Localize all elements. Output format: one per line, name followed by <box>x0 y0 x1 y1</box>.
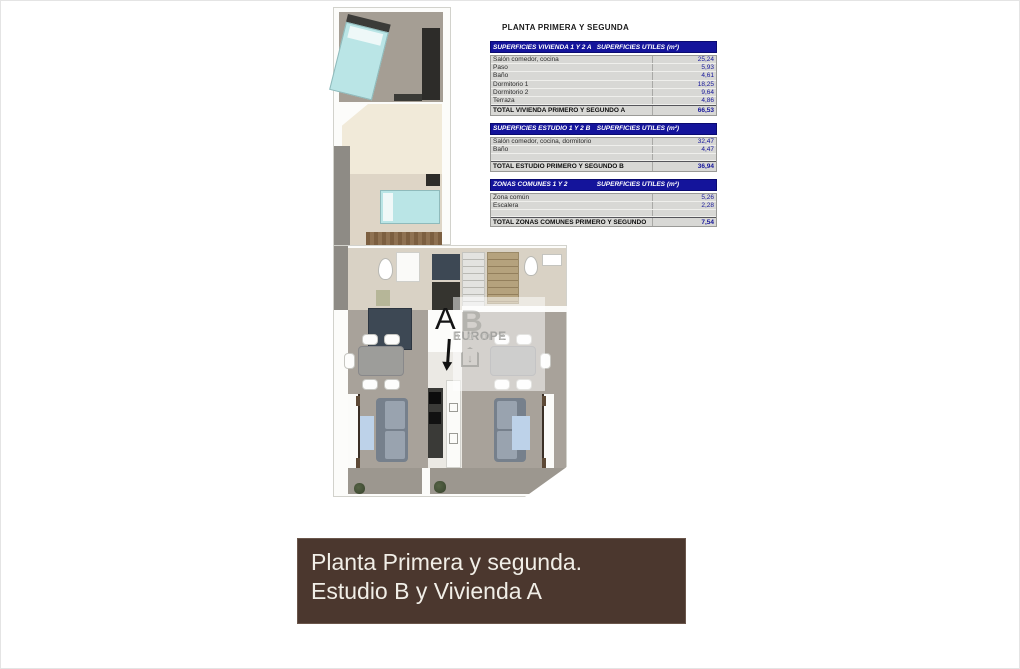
row-value: 4,47 <box>652 146 716 153</box>
table-row: Salón comedor, cocina, dormitorio32,47 <box>491 138 716 146</box>
row-label: Escalera <box>491 202 652 209</box>
table-row: Dormitorio 29,64 <box>491 89 716 97</box>
bedroom1-wardrobe <box>422 28 440 100</box>
page-canvas: B EUROPE h o m e ↓ A PLANTA PRIMERA Y SE… <box>0 0 1020 669</box>
chair-icon <box>362 379 378 390</box>
table-body: Salón comedor, cocina, dormitorio32,47Ba… <box>490 137 717 172</box>
sofa-cushion <box>385 431 405 459</box>
kitchen-counter <box>428 388 443 458</box>
utility-box <box>432 254 460 280</box>
table-row-blank <box>491 210 716 217</box>
plant-icon <box>434 481 446 493</box>
table-total-row: TOTAL ESTUDIO PRIMERO Y SEGUNDO B36,94 <box>491 161 716 171</box>
row-label: Dormitorio 1 <box>491 81 652 88</box>
surface-table: SUPERFICIES VIVIENDA 1 Y 2 ASUPERFICIES … <box>490 41 717 116</box>
table-row-blank <box>491 154 716 161</box>
row-value: 9,64 <box>652 89 716 96</box>
chair-icon <box>362 334 378 345</box>
row-label: Zona común <box>491 194 652 201</box>
white-closet <box>396 252 420 282</box>
table-row: Baño4,61 <box>491 72 716 80</box>
total-value: 66,53 <box>652 106 716 115</box>
bedroom2-nightstand <box>426 174 440 186</box>
table-header-left: ZONAS COMUNES 1 Y 2 <box>491 181 597 188</box>
row-label: Dormitorio 2 <box>491 89 652 96</box>
left-shadow-strip <box>334 146 350 246</box>
row-value: 5,93 <box>652 64 716 71</box>
total-value: 36,94 <box>652 162 716 171</box>
table-header-left: SUPERFICIES VIVIENDA 1 Y 2 A <box>491 44 597 51</box>
unit-a-label: A <box>435 303 456 334</box>
caption-line1: Planta Primera y segunda. <box>298 539 685 577</box>
table-header-right: SUPERFICIES UTILES (m²) <box>597 125 716 132</box>
surface-table: ZONAS COMUNES 1 Y 2SUPERFICIES UTILES (m… <box>490 179 717 228</box>
rug-a <box>358 416 374 450</box>
table-row: Salón comedor, cocina25,24 <box>491 56 716 64</box>
plan-title: PLANTA PRIMERA Y SEGUNDA <box>502 23 717 32</box>
toilet-icon <box>378 258 393 280</box>
dining-table-a <box>358 346 404 376</box>
row-value: 5,26 <box>652 194 716 201</box>
table-total-row: TOTAL ZONAS COMUNES PRIMERO Y SEGUNDO7,5… <box>491 217 716 227</box>
curtain-mark <box>356 458 360 468</box>
chair-icon <box>384 334 400 345</box>
row-label: Salón comedor, cocina <box>491 56 652 63</box>
chair-icon <box>344 353 355 369</box>
total-label: TOTAL ESTUDIO PRIMERO Y SEGUNDO B <box>491 163 652 170</box>
row-label: Salón comedor, cocina, dormitorio <box>491 138 652 145</box>
row-label: Terraza <box>491 97 652 104</box>
table-row: Paso5,93 <box>491 64 716 72</box>
bedroom1-lowboard <box>394 94 422 101</box>
table-header-right: SUPERFICIES UTILES (m²) <box>597 44 716 51</box>
plan-upper-wing <box>333 7 451 245</box>
table-header: ZONAS COMUNES 1 Y 2SUPERFICIES UTILES (m… <box>490 179 717 191</box>
appliance-icon <box>429 392 441 404</box>
caption-line2: Estudio B y Vivienda A <box>298 577 685 606</box>
appliance-icon <box>429 412 441 424</box>
rug-b <box>512 416 530 450</box>
curtain-mark <box>542 396 546 406</box>
plant-icon <box>354 483 365 494</box>
table-row: Baño4,47 <box>491 146 716 154</box>
row-value: 18,25 <box>652 81 716 88</box>
kitchen-island <box>446 380 461 468</box>
row-label: Baño <box>491 146 652 153</box>
sofa-a <box>376 398 408 462</box>
table-header-left: SUPERFICIES ESTUDIO 1 Y 2 B <box>491 125 597 132</box>
table-row: Terraza4,86 <box>491 97 716 105</box>
row-label: Paso <box>491 64 652 71</box>
table-row: Escalera2,28 <box>491 202 716 210</box>
row-value <box>652 210 716 216</box>
bottom-balcony <box>348 468 566 494</box>
row-value: 4,61 <box>652 72 716 79</box>
terrace-area <box>342 104 442 176</box>
caption-box: Planta Primera y segunda. Estudio B y Vi… <box>297 538 686 624</box>
left-shadow-strip <box>334 246 348 310</box>
sink-icon <box>542 254 562 266</box>
table-row: Zona común5,26 <box>491 194 716 202</box>
row-value: 25,24 <box>652 56 716 63</box>
total-label: TOTAL ZONAS COMUNES PRIMERO Y SEGUNDO <box>491 219 652 226</box>
curtain-mark <box>542 458 546 468</box>
tables-root: SUPERFICIES VIVIENDA 1 Y 2 ASUPERFICIES … <box>490 41 717 227</box>
row-label: Baño <box>491 72 652 79</box>
table-header: SUPERFICIES VIVIENDA 1 Y 2 ASUPERFICIES … <box>490 41 717 53</box>
bed-pillow <box>383 193 393 221</box>
balcony-divider-wall <box>422 468 430 494</box>
table-header-right: SUPERFICIES UTILES (m²) <box>597 181 716 188</box>
row-value <box>652 154 716 160</box>
row-value: 4,86 <box>652 97 716 104</box>
total-label: TOTAL VIVIENDA PRIMERO Y SEGUNDO A <box>491 107 652 114</box>
surface-table: SUPERFICIES ESTUDIO 1 Y 2 BSUPERFICIES U… <box>490 123 717 172</box>
table-row: Dormitorio 118,25 <box>491 81 716 89</box>
bedroom2-bed <box>380 190 440 224</box>
toilet-icon <box>524 256 538 276</box>
total-value: 7,54 <box>652 218 716 227</box>
table-total-row: TOTAL VIVIENDA PRIMERO Y SEGUNDO A66,53 <box>491 105 716 115</box>
table-header: SUPERFICIES ESTUDIO 1 Y 2 BSUPERFICIES U… <box>490 123 717 135</box>
row-value: 2,28 <box>652 202 716 209</box>
table-body: Zona común5,26Escalera2,28TOTAL ZONAS CO… <box>490 193 717 228</box>
curtain-mark <box>356 396 360 406</box>
hob-icon <box>449 433 458 444</box>
bedroom2-wardrobe <box>366 232 442 246</box>
chair-icon <box>384 379 400 390</box>
surface-tables: PLANTA PRIMERA Y SEGUNDA SUPERFICIES VIV… <box>490 23 717 234</box>
row-value: 32,47 <box>652 138 716 145</box>
sink-icon <box>449 403 458 412</box>
door-mat <box>376 290 390 306</box>
watermark-brand-light: h o m e <box>453 329 507 343</box>
table-body: Salón comedor, cocina25,24Paso5,93Baño4,… <box>490 55 717 116</box>
sofa-cushion <box>385 401 405 429</box>
